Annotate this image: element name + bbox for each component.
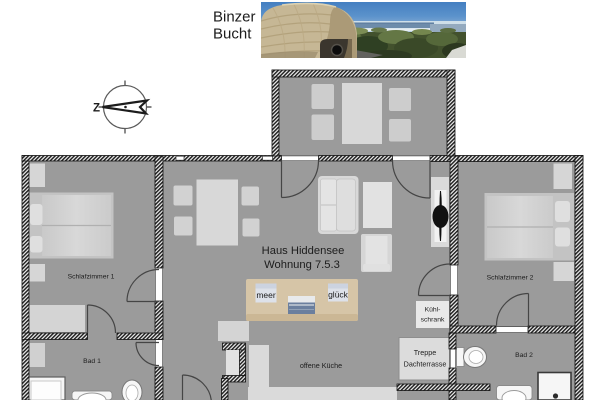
svg-text:meer: meer — [256, 290, 276, 300]
svg-text:Kühl-: Kühl- — [425, 307, 441, 314]
svg-text:Bad 1: Bad 1 — [83, 358, 101, 365]
svg-text:Z: Z — [93, 103, 100, 115]
svg-text:Bucht: Bucht — [213, 26, 252, 43]
svg-text:Bad 2: Bad 2 — [515, 352, 533, 359]
svg-text:Schlafzimmer 2: Schlafzimmer 2 — [487, 275, 534, 282]
svg-text:schrank: schrank — [421, 317, 445, 324]
svg-text:glück: glück — [328, 290, 349, 300]
svg-text:offene Küche: offene Küche — [300, 361, 342, 370]
svg-text:Dachterrasse: Dachterrasse — [404, 360, 447, 369]
svg-text:Treppe: Treppe — [414, 348, 437, 357]
svg-text:Haus Hiddensee: Haus Hiddensee — [262, 245, 345, 257]
svg-text:Schlafzimmer 1: Schlafzimmer 1 — [68, 274, 115, 281]
svg-text:Wohnung 7.5.3: Wohnung 7.5.3 — [264, 259, 340, 271]
svg-text:Binzer: Binzer — [213, 9, 256, 26]
